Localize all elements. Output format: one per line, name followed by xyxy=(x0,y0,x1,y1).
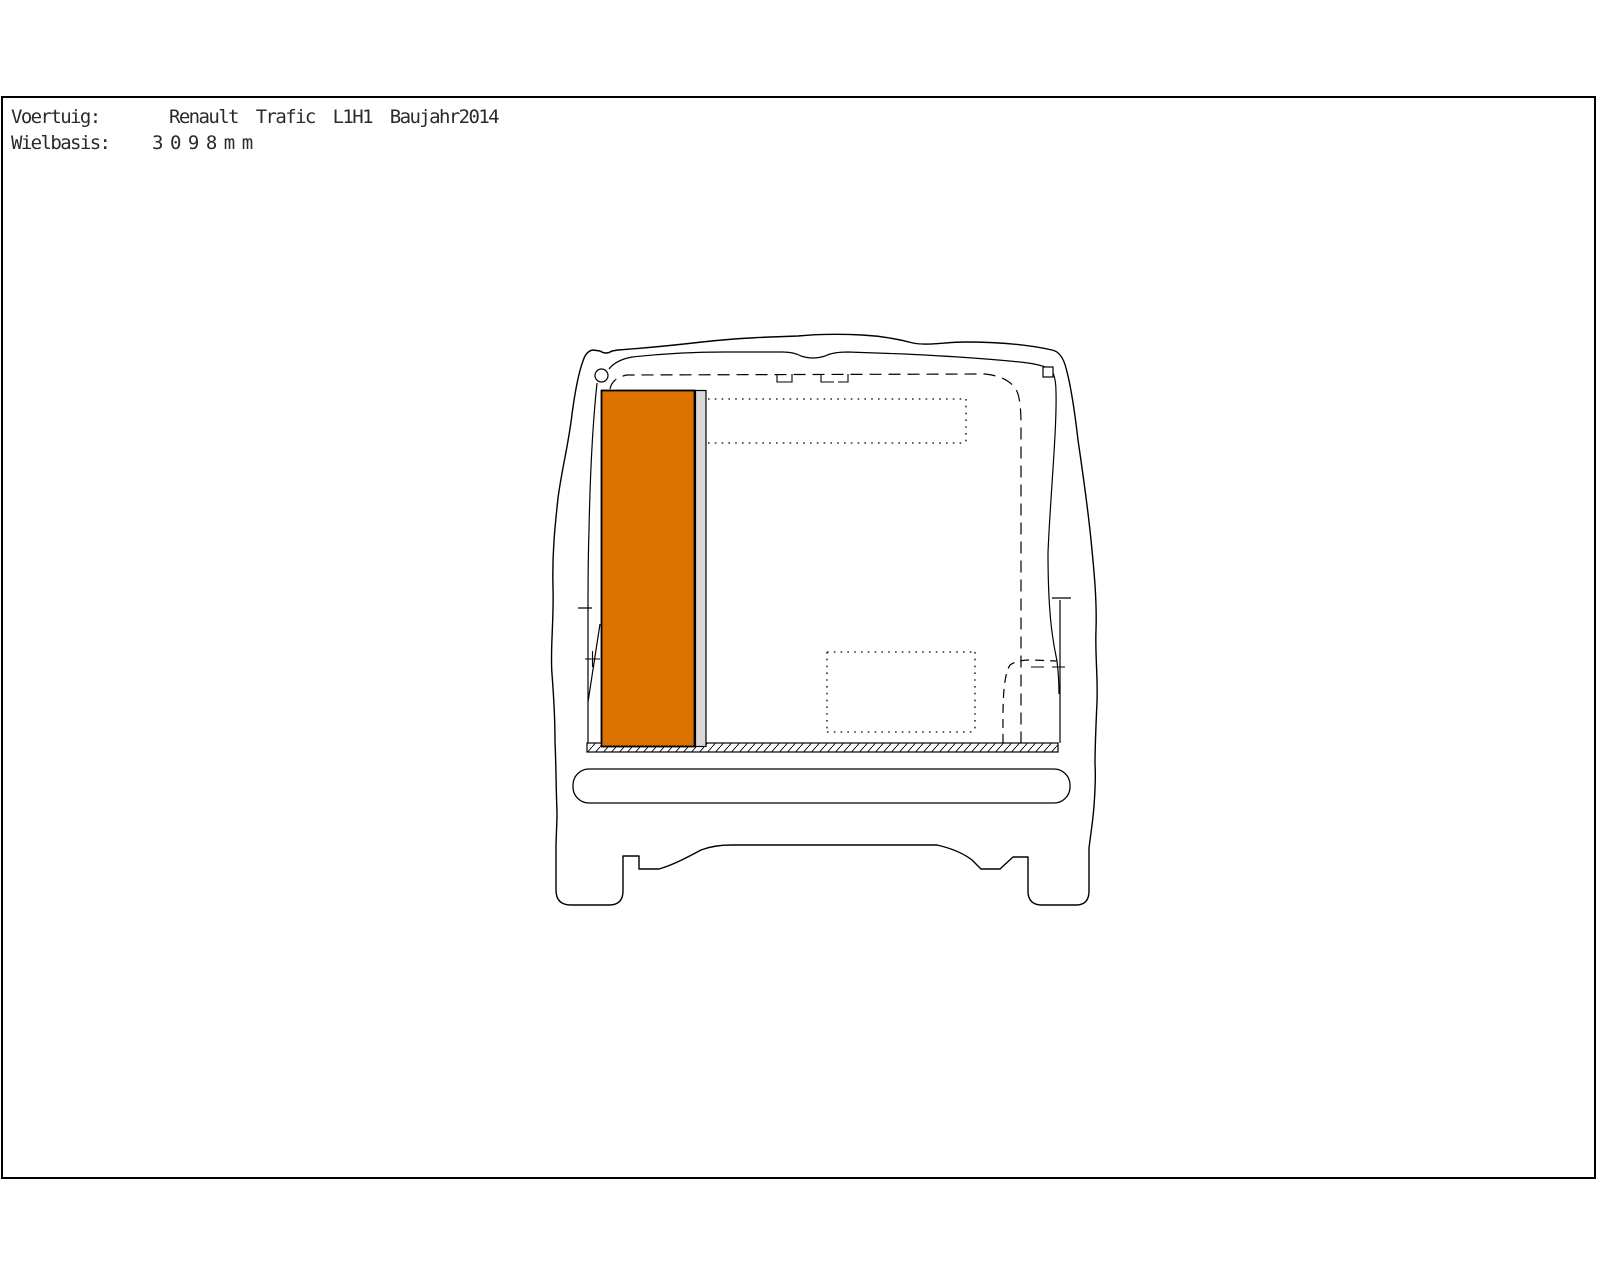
technical-drawing-sheet: { "header": { "vehicle_label": "Voertuig… xyxy=(0,0,1600,1280)
cargo-module-highlight xyxy=(602,391,695,747)
cargo-module-side-panel xyxy=(696,391,707,747)
van-rear-view-drawing xyxy=(0,0,1600,1280)
rear-bumper-outline xyxy=(573,769,1070,803)
top-left-circle-marker xyxy=(595,369,608,382)
top-right-square-marker xyxy=(1043,367,1053,377)
